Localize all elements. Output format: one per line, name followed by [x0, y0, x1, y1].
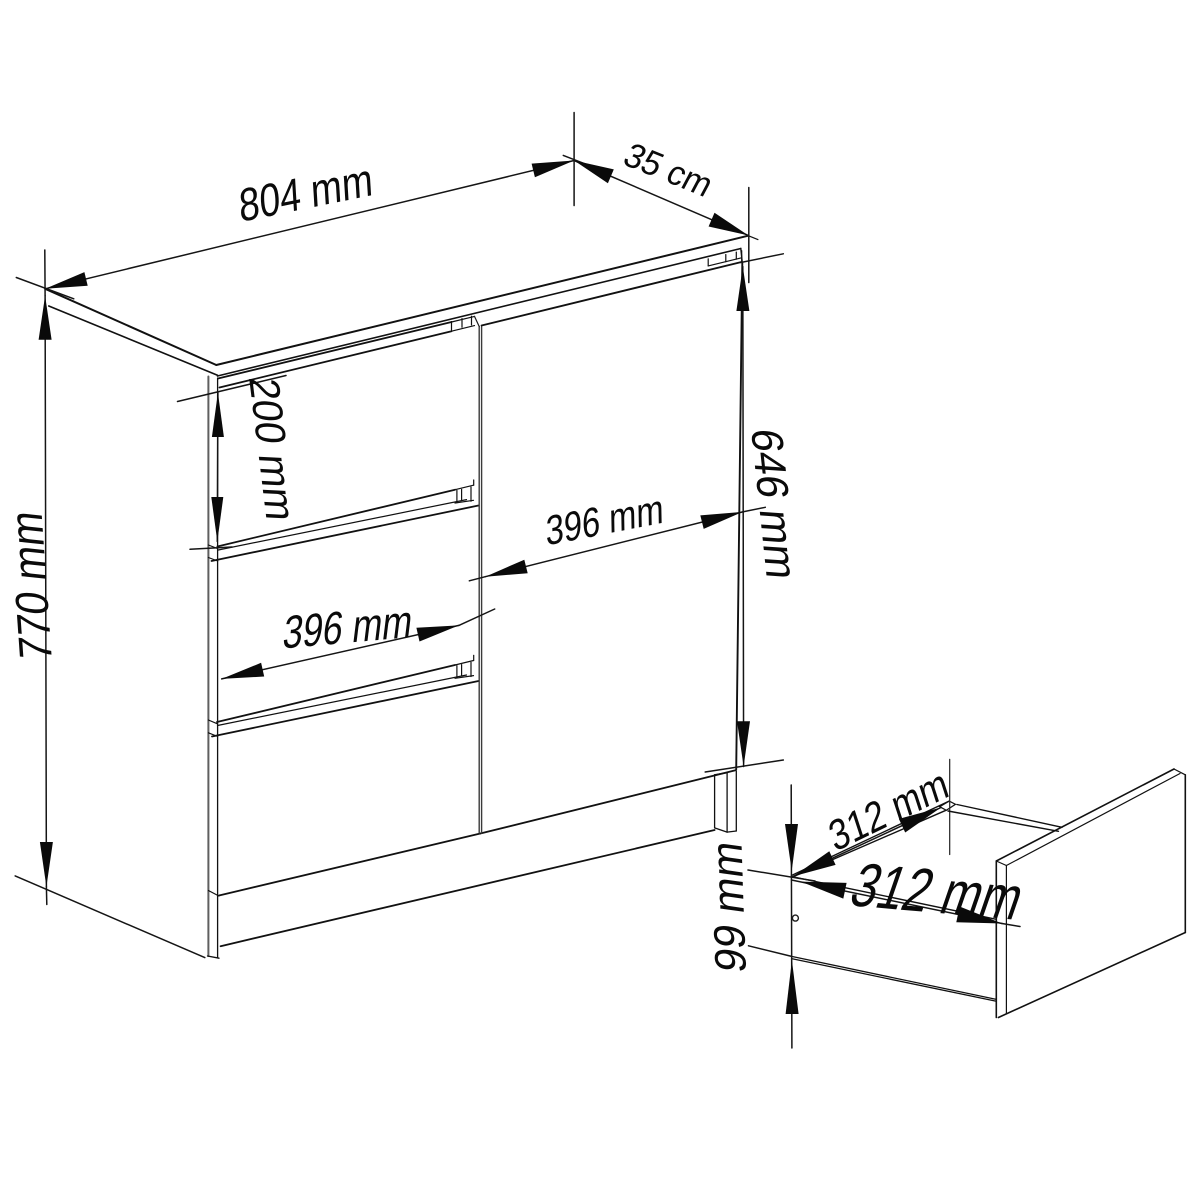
- svg-text:770 mm: 770 mm: [1, 509, 63, 664]
- svg-text:99 mm: 99 mm: [702, 838, 756, 975]
- svg-text:312 mm: 312 mm: [843, 850, 1034, 933]
